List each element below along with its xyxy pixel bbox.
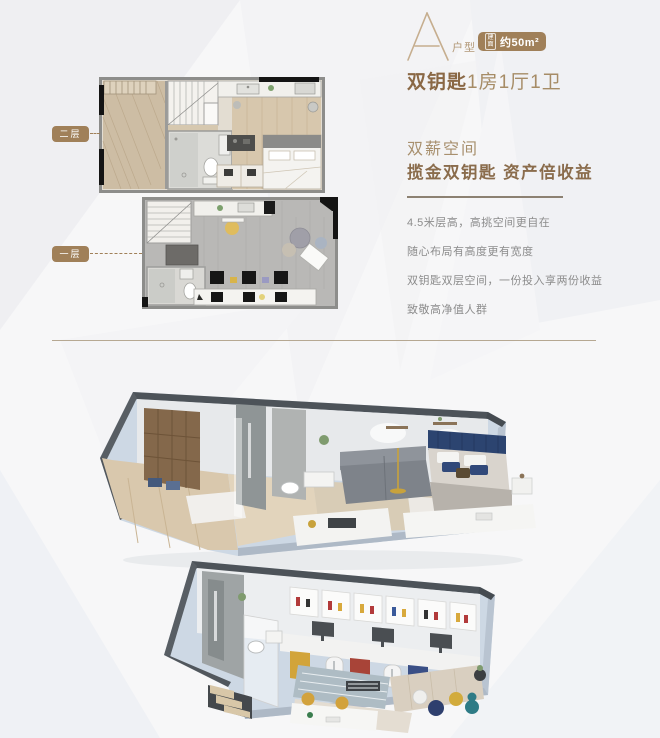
selling-line: 双钥匙双层空间，一份投入享两份收益 [407,272,637,288]
unit-title-strong: 双钥匙 [407,72,467,93]
unit-title-rest: 1房1厅1卫 [467,72,562,93]
selling-headline: 揽金双钥匙 资产倍收益 [407,159,593,183]
selling-line: 致敬高净值人群 [407,301,637,317]
selling-kicker: 双薪空间 [407,135,479,159]
selling-line: 随心布局有高度更有宽度 [407,243,637,259]
section-divider-rule [52,340,596,341]
selling-line: 4.5米层高，高挑空间更自在 [407,214,637,230]
unit-title: 双钥匙1房1厅1卫 [407,67,562,94]
selling-points: 4.5米层高，高挑空间更自在 随心布局有高度更有宽度 双钥匙双层空间，一份投入享… [407,214,637,330]
floor-label-badge-2f: 二层 [52,126,89,142]
render-3d-bedroom-level [88,378,558,578]
area-badge-value: 约50m² [500,34,539,50]
floorplan-2f [99,77,325,193]
leader-line-2f [90,133,100,134]
unit-letter-mark: A [405,10,451,62]
render-3d-office-level [150,556,560,738]
floorplan-1f [142,197,338,309]
unit-type-label: 户型 [452,39,476,55]
area-badge-prefix: 建面 [485,33,496,51]
unit-a-poster: 二层 一层 A 户型 建面 约50m² 双钥匙1房1厅1卫 双薪空间 揽金双钥匙… [0,0,660,738]
area-badge: 建面 约50m² [478,32,546,51]
leader-line-1f [90,253,142,254]
floor-label-badge-1f: 一层 [52,246,89,262]
headline-divider [407,196,563,198]
